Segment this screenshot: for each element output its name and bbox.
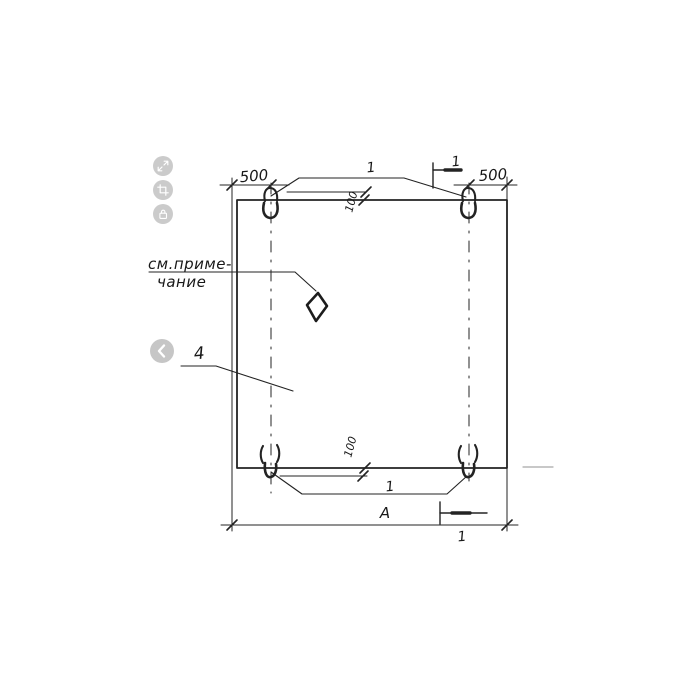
- loop-axis-lines: [271, 183, 469, 493]
- technical-drawing: 500 500 А 1 100: [0, 0, 700, 700]
- dimension-top-right: 500: [454, 165, 517, 190]
- section-label-bottom: 1: [457, 529, 468, 546]
- section-mark-bottom: 1: [440, 502, 487, 545]
- callout-label-bottom: 1: [385, 479, 396, 496]
- lifting-loops-bottom: [261, 445, 478, 477]
- dim-label-100-top: 100: [343, 190, 361, 214]
- callout-label-top: 1: [366, 160, 377, 177]
- dim-label-500-right: 500: [478, 165, 508, 185]
- callout-loops-top: 1: [271, 160, 466, 197]
- dimension-offset-bottom: 100: [280, 435, 370, 481]
- section-label-top: 1: [451, 154, 462, 171]
- section-mark-top: 1: [433, 154, 461, 188]
- dimension-top-left: 500: [220, 166, 289, 190]
- panel-outline: [237, 200, 553, 468]
- dimension-overall-width: А: [221, 504, 518, 530]
- note-text-line1: см.приме-: [148, 255, 232, 273]
- dim-label-500-left: 500: [239, 166, 269, 186]
- dim-label-100-bottom: 100: [342, 435, 360, 459]
- panel-callout-label: 4: [193, 343, 206, 364]
- note-text-line2: чание: [157, 273, 206, 291]
- dim-label-width: А: [379, 504, 390, 522]
- image-viewer: 500 500 А 1 100: [0, 0, 700, 700]
- marking-diamond-symbol: [307, 293, 327, 321]
